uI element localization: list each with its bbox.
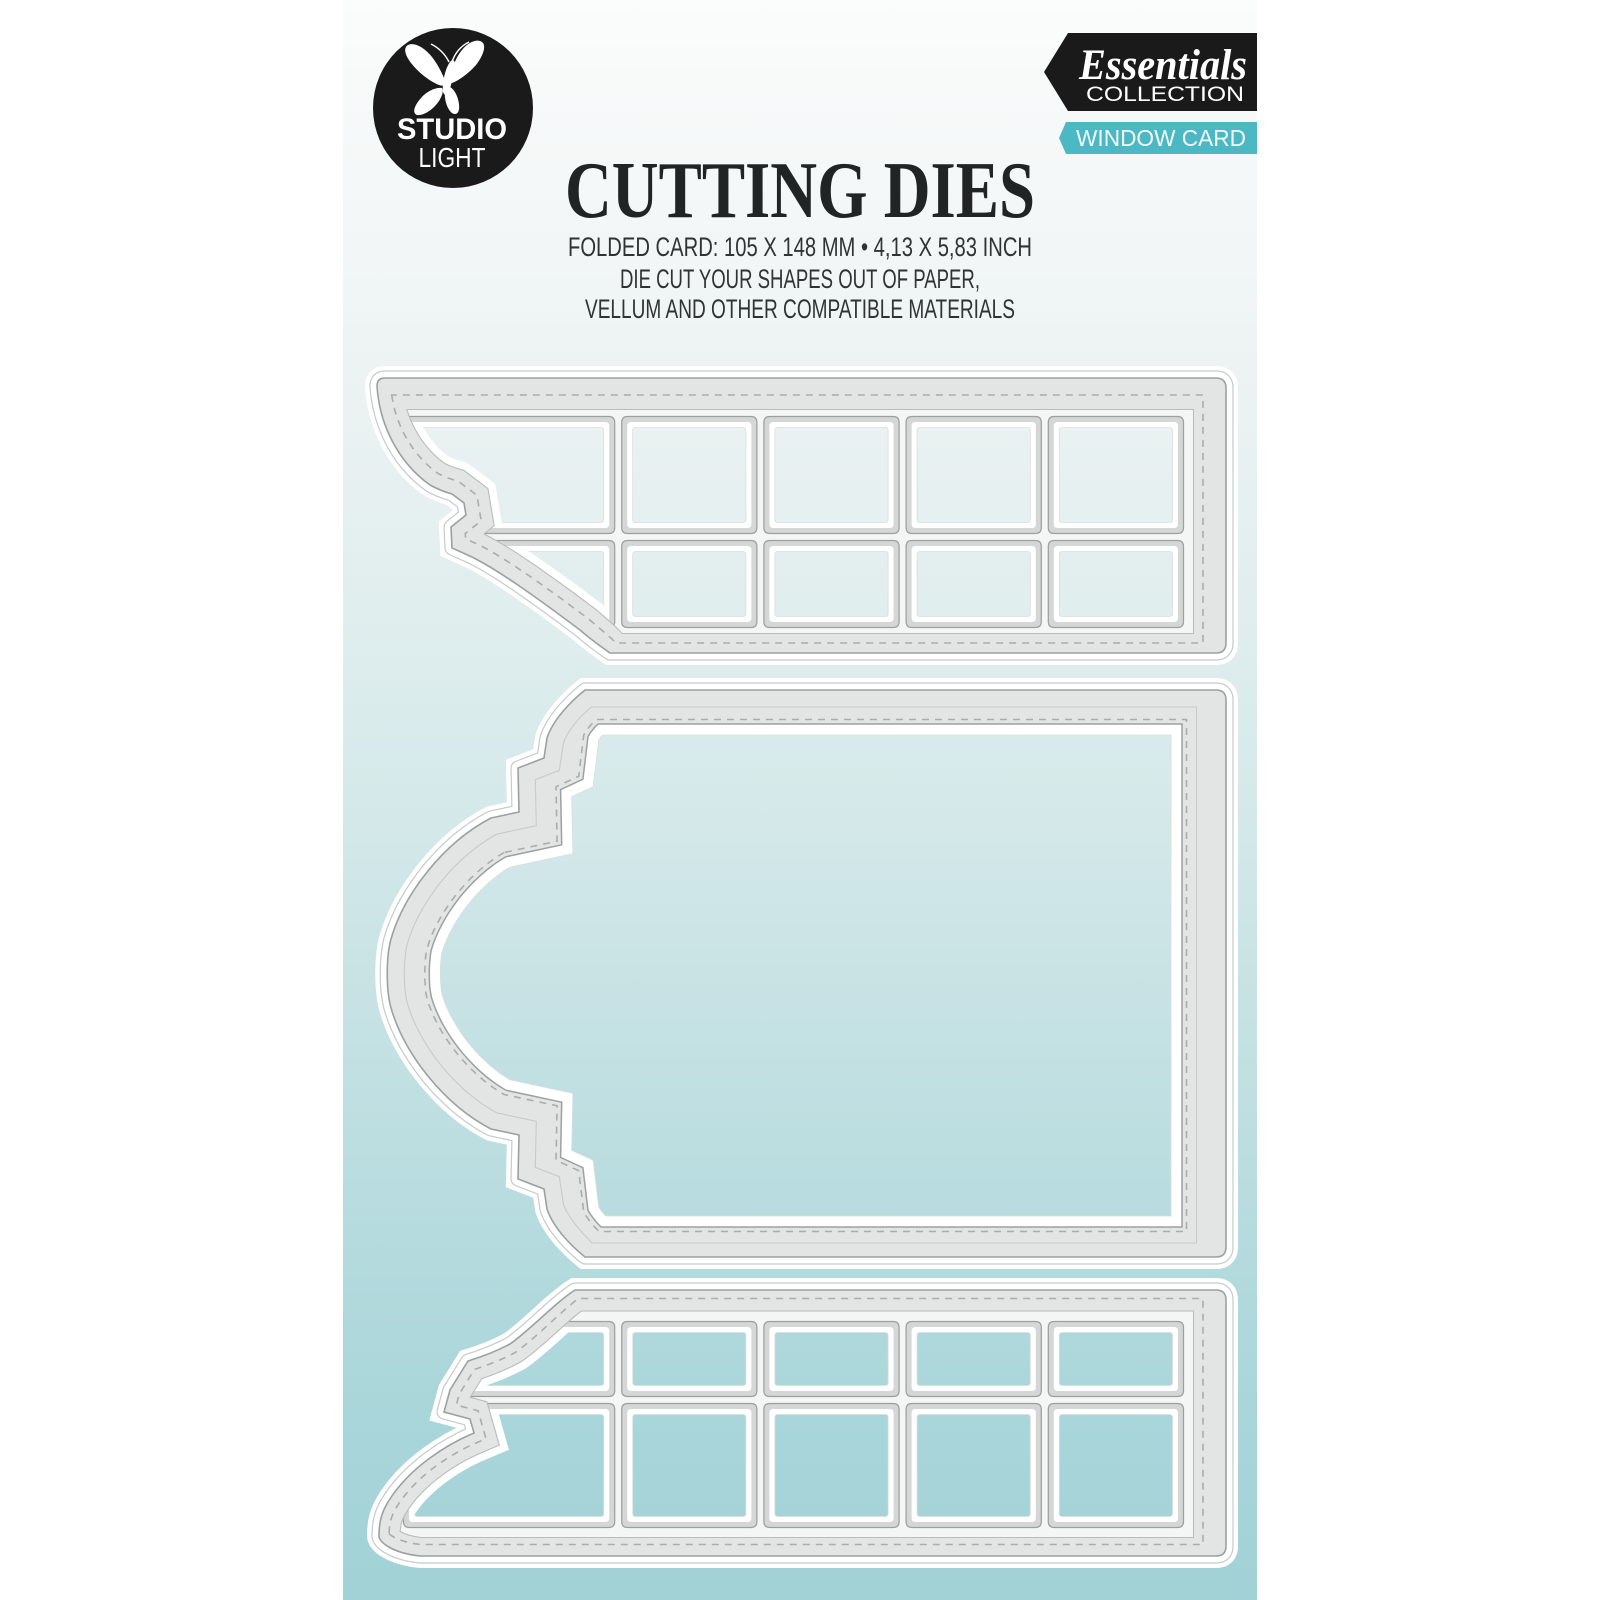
svg-text:LIGHT: LIGHT bbox=[419, 142, 486, 173]
svg-text:FOLDED CARD: 105 X 148 MM • 4,: FOLDED CARD: 105 X 148 MM • 4,13 X 5,83 … bbox=[568, 232, 1032, 262]
svg-text:Essentials: Essentials bbox=[1078, 42, 1247, 89]
svg-text:CUTTING DIES: CUTTING DIES bbox=[565, 145, 1035, 235]
svg-text:WINDOW CARD: WINDOW CARD bbox=[1076, 125, 1246, 151]
svg-text:COLLECTION: COLLECTION bbox=[1086, 83, 1244, 106]
svg-text:VELLUM AND OTHER COMPATIBLE MA: VELLUM AND OTHER COMPATIBLE MATERIALS bbox=[585, 294, 1015, 324]
svg-text:DIE CUT YOUR SHAPES OUT OF PAP: DIE CUT YOUR SHAPES OUT OF PAPER, bbox=[620, 264, 980, 294]
